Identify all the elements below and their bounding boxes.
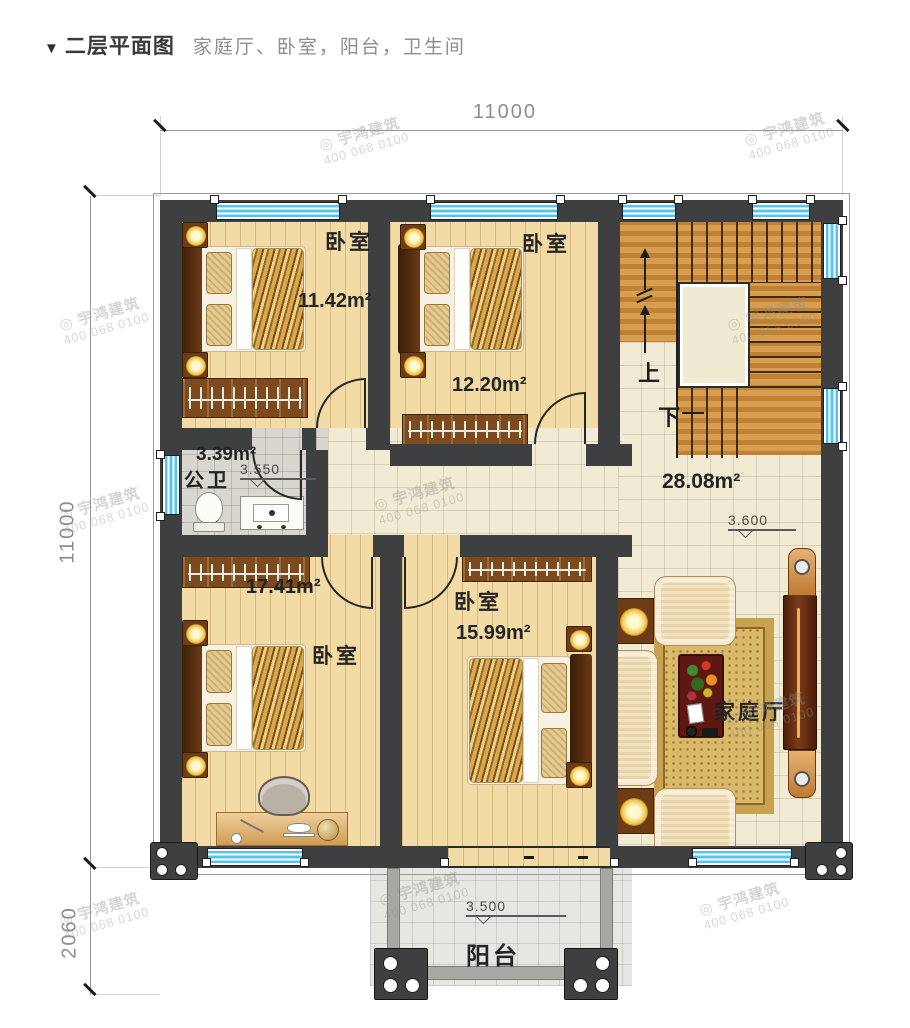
vanity-knob bbox=[281, 525, 286, 529]
column-circle bbox=[405, 978, 420, 993]
pier-circle bbox=[156, 847, 168, 859]
bedroom-bottom-left-label: 卧室 bbox=[312, 640, 360, 670]
dimension-line-bottom-left bbox=[90, 868, 91, 995]
window-bottom-left bbox=[207, 848, 303, 866]
bedroom-top-left-label: 卧室 bbox=[325, 226, 373, 256]
nightstand bbox=[182, 352, 208, 378]
door-leaf bbox=[584, 392, 586, 444]
nightstand bbox=[400, 224, 426, 250]
column-marker bbox=[610, 858, 619, 867]
yuhong-logo-icon: ◎ bbox=[317, 134, 335, 154]
tv-screen-line bbox=[797, 608, 800, 738]
bed-blanket bbox=[252, 248, 304, 350]
tv-cabinet bbox=[783, 595, 817, 750]
bedroom-bottom-mid-label: 卧室 bbox=[454, 586, 502, 616]
watermark-phone: 400 068 0100 bbox=[702, 895, 791, 933]
lamp-glow bbox=[570, 630, 590, 650]
pier-circle bbox=[816, 864, 828, 876]
bed-pillow bbox=[541, 728, 567, 778]
window-top-3 bbox=[622, 202, 676, 220]
wardrobe-hangers bbox=[409, 421, 521, 438]
bedroom-bottom-mid-area: 15.99m² bbox=[456, 622, 531, 645]
yuhong-logo-icon: ◎ bbox=[57, 314, 75, 334]
lamp-glow bbox=[404, 356, 424, 376]
book bbox=[687, 703, 704, 724]
bed-blanket bbox=[470, 248, 522, 350]
corner-pier-left bbox=[150, 842, 198, 880]
column-marker bbox=[426, 195, 435, 204]
lamp-glow bbox=[620, 798, 648, 826]
door-leaf bbox=[404, 557, 406, 609]
bed-headboard bbox=[398, 244, 420, 354]
window-top-4 bbox=[752, 202, 810, 220]
watermark-phone: 400 068 0100 bbox=[62, 310, 151, 348]
bed-sheet-fold bbox=[236, 646, 252, 750]
column-marker bbox=[838, 216, 847, 225]
bed-pillow bbox=[206, 252, 232, 294]
lamp-glow bbox=[186, 756, 206, 776]
bed-pillow bbox=[424, 252, 450, 294]
watermark-brand: 宇鸿建筑 bbox=[76, 485, 142, 519]
family-room-label: 家庭厅 bbox=[714, 696, 786, 726]
yuhong-logo-icon: ◎ bbox=[742, 129, 760, 149]
column-marker bbox=[156, 450, 165, 459]
wall-corridor-bottom-b bbox=[373, 535, 404, 557]
door-leaf bbox=[371, 557, 373, 609]
level-marker-hall: 3.600 bbox=[728, 512, 796, 536]
bedroom-top-mid-label: 卧室 bbox=[522, 228, 570, 258]
page-title: ▼ 二层平面图 家庭厅、卧室，阳台，卫生间 bbox=[44, 30, 466, 60]
desk-chair bbox=[258, 776, 310, 816]
bed-pillow bbox=[206, 703, 232, 746]
stair-flight-top bbox=[676, 222, 821, 282]
stair-up-label: 上 bbox=[638, 356, 660, 388]
bed-blanket bbox=[252, 646, 304, 750]
dimension-top-value: 11000 bbox=[460, 101, 550, 124]
bed-pillow bbox=[541, 663, 567, 713]
column-circle bbox=[595, 978, 610, 993]
lamp-glow bbox=[186, 356, 206, 376]
wall-family-room-left bbox=[596, 557, 618, 868]
stair-arrow-line bbox=[644, 315, 646, 353]
plan-subtitle: 家庭厅、卧室，阳台，卫生间 bbox=[193, 32, 466, 59]
stair-up-arrowhead bbox=[640, 305, 650, 315]
dimension-line-top bbox=[160, 130, 843, 131]
floorplan-page: { "header": { "marker": "▼", "title": "二… bbox=[0, 0, 910, 1028]
bed-top-mid bbox=[398, 244, 526, 354]
side-table bbox=[612, 788, 654, 834]
stair-down-leader bbox=[682, 412, 704, 414]
nightstand bbox=[566, 762, 592, 788]
column-circle bbox=[383, 956, 398, 971]
pier-circle bbox=[835, 864, 847, 876]
wall-corridor-bottom-c bbox=[460, 535, 632, 557]
column-marker bbox=[838, 442, 847, 451]
desk-jar bbox=[317, 819, 339, 841]
wardrobe bbox=[462, 556, 592, 582]
bed-bottom-left bbox=[180, 642, 308, 754]
pier-circle bbox=[175, 864, 187, 876]
extension-line bbox=[842, 116, 843, 196]
level-marker-bathroom: 3.550 bbox=[240, 461, 316, 485]
column-circle bbox=[383, 978, 398, 993]
stair-flight-right bbox=[750, 282, 821, 388]
bedroom-top-mid-area: 12.20m² bbox=[452, 374, 527, 397]
wall-corridor-bottom-a bbox=[160, 535, 320, 557]
speaker-stand-bottom bbox=[788, 750, 816, 798]
stair-down-label: 下 bbox=[658, 400, 680, 432]
sink-drain bbox=[269, 510, 275, 516]
stair-void bbox=[678, 282, 750, 388]
bed-sheet-fold bbox=[523, 658, 539, 783]
nightstand bbox=[182, 752, 208, 778]
watermark: ◎ 宇鸿建筑400 068 0100 bbox=[317, 113, 411, 168]
bed-sheet-fold bbox=[454, 248, 470, 350]
wall-stair-left bbox=[598, 222, 620, 466]
watermark-brand: 宇鸿建筑 bbox=[336, 115, 402, 149]
watermark-brand: 宇鸿建筑 bbox=[761, 110, 827, 144]
bed-sheet-fold bbox=[236, 248, 252, 350]
window-bathroom bbox=[162, 455, 180, 515]
vanity-knob bbox=[257, 525, 262, 529]
extension-line bbox=[96, 994, 160, 995]
bedroom-bottom-left-area: 17.41m² bbox=[246, 576, 321, 599]
window-bottom-right bbox=[692, 848, 792, 866]
column-marker bbox=[838, 276, 847, 285]
watermark-brand: 宇鸿建筑 bbox=[76, 295, 142, 329]
desk-pen bbox=[240, 819, 264, 833]
stair-up-arrowhead bbox=[640, 248, 650, 258]
toilet bbox=[195, 492, 223, 524]
bed-headboard bbox=[180, 244, 202, 354]
column-marker bbox=[440, 858, 449, 867]
speaker-knob bbox=[794, 559, 810, 575]
bedroom-top-left-area: 11.42m² bbox=[298, 290, 371, 313]
bed-pillow bbox=[206, 650, 232, 693]
dimension-bottom-left-value: 2060 bbox=[59, 893, 82, 973]
wardrobe bbox=[402, 414, 528, 445]
stair-flight-bottom bbox=[676, 388, 750, 458]
balcony-rail-left bbox=[387, 868, 400, 950]
column-marker bbox=[806, 195, 815, 204]
pier-circle bbox=[835, 847, 847, 859]
balcony-label: 阳台 bbox=[466, 936, 520, 971]
column-marker bbox=[674, 195, 683, 204]
column-marker bbox=[156, 512, 165, 521]
bathroom-vanity bbox=[240, 496, 304, 530]
yuhong-logo-icon: ◎ bbox=[697, 899, 715, 919]
wall-left bbox=[160, 200, 182, 868]
wardrobe bbox=[182, 378, 308, 418]
bed-pillow bbox=[424, 304, 450, 346]
column-marker bbox=[748, 195, 757, 204]
nightstand bbox=[182, 222, 208, 248]
bathroom-label: 公卫 bbox=[184, 464, 230, 493]
extension-line bbox=[96, 195, 160, 196]
column-marker bbox=[790, 858, 799, 867]
lamp-glow bbox=[186, 226, 206, 246]
dimension-line-left bbox=[90, 196, 91, 868]
kettle bbox=[686, 726, 697, 737]
balcony-rail-right bbox=[600, 868, 613, 950]
wardrobe-hangers bbox=[469, 562, 584, 576]
balcony-column-right bbox=[564, 948, 618, 1000]
lamp-glow bbox=[570, 766, 590, 786]
wall-corridor-top-b bbox=[302, 428, 316, 450]
door-stop-mark bbox=[578, 856, 588, 859]
hall-area: 28.08m² bbox=[662, 470, 740, 494]
remote bbox=[702, 728, 718, 737]
bed-pillow bbox=[206, 304, 232, 346]
corner-pier-right bbox=[805, 842, 853, 880]
desk-hat bbox=[287, 823, 311, 833]
speaker-stand-top bbox=[788, 548, 816, 596]
column-marker bbox=[210, 195, 219, 204]
door-leaf bbox=[364, 378, 366, 428]
window-top-1 bbox=[216, 202, 340, 220]
lamp-glow bbox=[404, 228, 424, 248]
speaker-knob bbox=[794, 771, 810, 787]
window-right-2 bbox=[823, 388, 841, 444]
column-marker bbox=[202, 858, 211, 867]
watermark: ◎ 宇鸿建筑400 068 0100 bbox=[697, 878, 791, 933]
stair-arrow-line bbox=[644, 258, 646, 290]
column-marker bbox=[618, 195, 627, 204]
window-top-2 bbox=[430, 202, 558, 220]
balcony-column-left bbox=[374, 948, 428, 1000]
nightstand bbox=[400, 352, 426, 378]
wall-bedroom-top-mid-bottom-a bbox=[390, 444, 532, 466]
wall-bedrooms-bottom-divider bbox=[380, 557, 402, 868]
nightstand bbox=[182, 620, 208, 646]
lamp-glow bbox=[620, 608, 648, 636]
column-marker bbox=[300, 858, 309, 867]
side-table bbox=[612, 598, 654, 644]
dimension-left-value: 11000 bbox=[57, 492, 80, 572]
desk-glasses bbox=[231, 833, 242, 844]
pier-circle bbox=[156, 864, 168, 876]
nightstand bbox=[566, 626, 592, 652]
lamp-glow bbox=[186, 624, 206, 644]
armchair-top bbox=[654, 576, 736, 646]
desk bbox=[216, 812, 348, 846]
window-right-1 bbox=[823, 223, 841, 279]
door-stop-mark bbox=[524, 856, 534, 859]
watermark: ◎ 宇鸿建筑400 068 0100 bbox=[57, 293, 151, 348]
wall-corridor-top-c bbox=[366, 428, 390, 450]
level-value: 3.550 bbox=[240, 461, 316, 477]
watermark-brand: 宇鸿建筑 bbox=[716, 880, 782, 914]
watermark-phone: 400 068 0100 bbox=[322, 130, 411, 168]
watermark: ◎ 宇鸿建筑400 068 0100 bbox=[742, 108, 836, 163]
column-marker bbox=[838, 382, 847, 391]
watermark-brand: 宇鸿建筑 bbox=[76, 890, 142, 924]
plan-title: 二层平面图 bbox=[65, 30, 175, 60]
column-circle bbox=[573, 978, 588, 993]
toilet-tank bbox=[193, 522, 225, 532]
level-value: 3.600 bbox=[728, 512, 796, 528]
column-marker bbox=[556, 195, 565, 204]
level-marker-balcony: 3.500 bbox=[466, 898, 566, 922]
column-marker bbox=[338, 195, 347, 204]
wall-right bbox=[821, 200, 843, 868]
bed-top-left bbox=[180, 244, 308, 354]
wardrobe-hangers bbox=[189, 387, 301, 409]
column-marker bbox=[688, 858, 697, 867]
column-circle bbox=[595, 956, 610, 971]
desk-hat-brim bbox=[283, 833, 315, 837]
bed-headboard bbox=[180, 642, 202, 754]
title-marker-icon: ▼ bbox=[44, 40, 59, 57]
bed-blanket bbox=[469, 658, 523, 783]
